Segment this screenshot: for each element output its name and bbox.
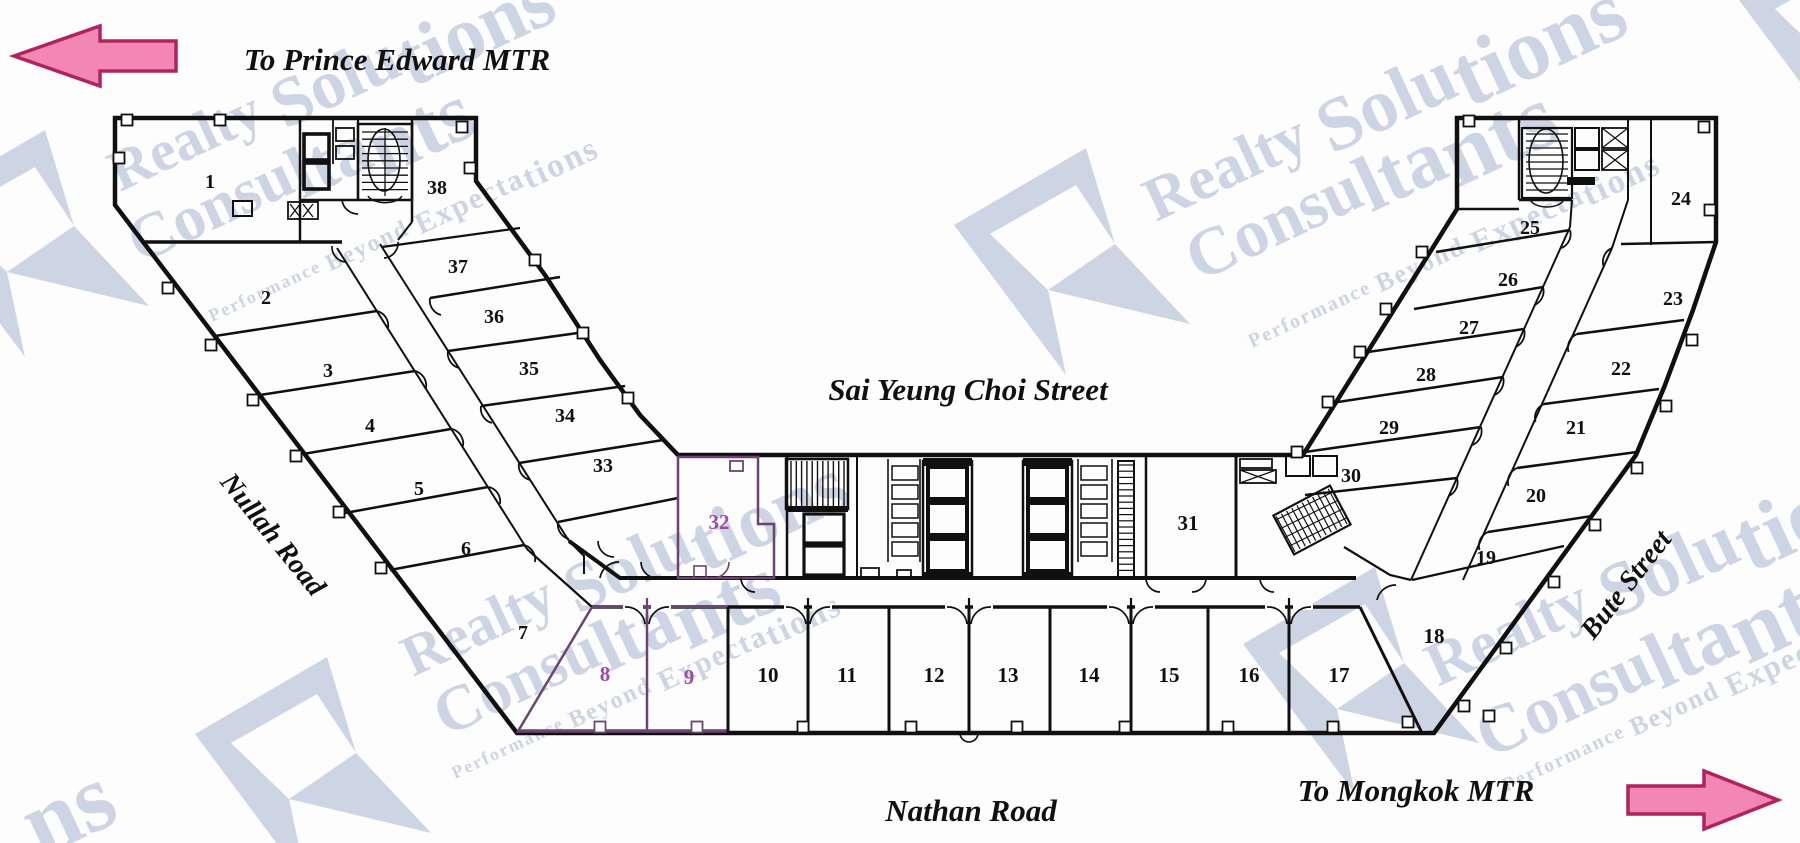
svg-text:20: 20 [1526, 485, 1546, 507]
svg-text:34: 34 [555, 405, 575, 427]
svg-text:7: 7 [518, 622, 528, 644]
svg-text:21: 21 [1566, 417, 1586, 439]
svg-text:35: 35 [519, 358, 539, 380]
svg-text:24: 24 [1671, 188, 1691, 210]
svg-text:33: 33 [593, 455, 613, 477]
svg-text:3: 3 [323, 360, 333, 382]
svg-text:8: 8 [600, 662, 611, 686]
svg-text:5: 5 [414, 478, 424, 500]
svg-text:11: 11 [837, 663, 857, 687]
svg-text:30: 30 [1341, 465, 1361, 487]
svg-text:12: 12 [924, 663, 945, 687]
svg-text:37: 37 [448, 256, 468, 278]
svg-text:15: 15 [1159, 663, 1180, 687]
svg-text:4: 4 [365, 415, 375, 437]
svg-text:To Prince Edward MTR: To Prince Edward MTR [244, 42, 550, 77]
svg-text:6: 6 [461, 538, 471, 560]
svg-text:27: 27 [1459, 317, 1479, 339]
svg-text:22: 22 [1611, 358, 1631, 380]
svg-text:18: 18 [1424, 624, 1445, 648]
svg-text:17: 17 [1329, 663, 1350, 687]
svg-text:16: 16 [1239, 663, 1260, 687]
svg-text:Nathan Road: Nathan Road [884, 793, 1057, 828]
svg-text:29: 29 [1379, 417, 1399, 439]
svg-text:31: 31 [1178, 511, 1199, 535]
svg-text:36: 36 [484, 306, 504, 328]
svg-text:38: 38 [427, 177, 447, 199]
svg-text:28: 28 [1416, 364, 1436, 386]
svg-text:Sai Yeung Choi Street: Sai Yeung Choi Street [828, 372, 1109, 407]
svg-text:13: 13 [998, 663, 1019, 687]
svg-text:10: 10 [758, 663, 779, 687]
svg-text:14: 14 [1079, 663, 1101, 687]
svg-text:23: 23 [1663, 288, 1683, 310]
svg-text:2: 2 [261, 287, 271, 309]
svg-text:To Mongkok MTR: To Mongkok MTR [1298, 773, 1535, 808]
svg-text:26: 26 [1498, 269, 1518, 291]
svg-text:25: 25 [1520, 217, 1540, 239]
svg-text:9: 9 [684, 665, 695, 689]
svg-text:32: 32 [709, 510, 730, 534]
svg-text:19: 19 [1476, 547, 1496, 569]
svg-text:1: 1 [205, 171, 215, 193]
